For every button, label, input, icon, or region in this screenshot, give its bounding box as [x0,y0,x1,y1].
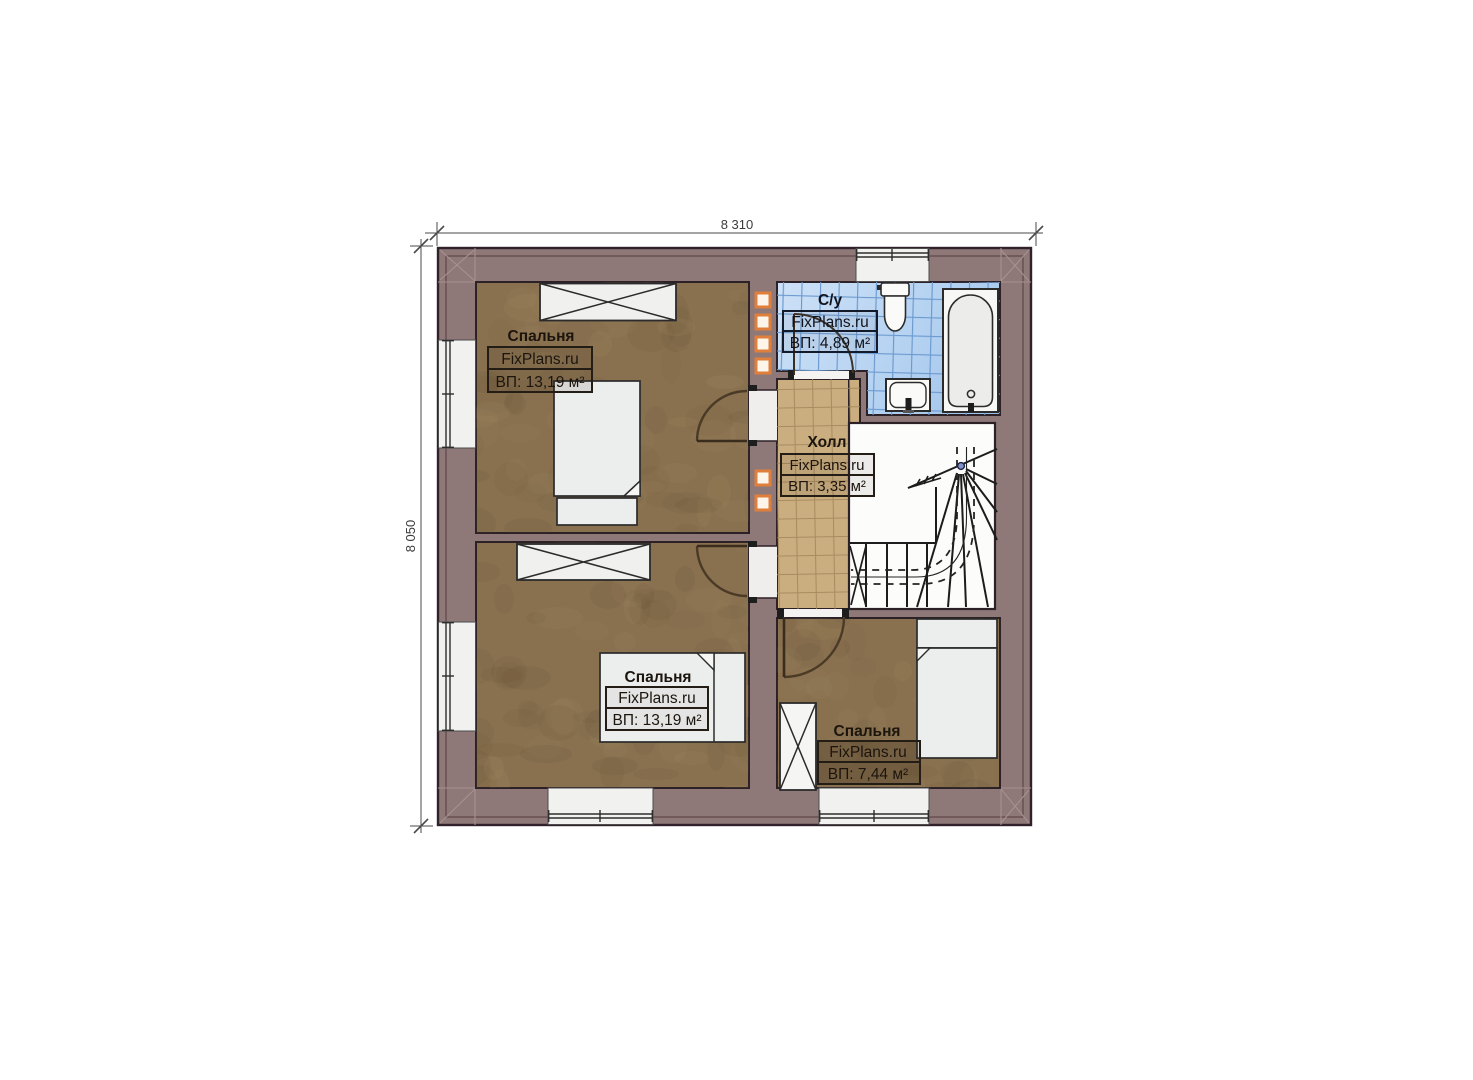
svg-text:Спальня: Спальня [834,723,901,740]
svg-text:FixPlans.ru: FixPlans.ru [829,744,907,761]
svg-text:ВП: 7,44 м²: ВП: 7,44 м² [828,766,908,783]
svg-text:С/у: С/у [818,292,843,309]
svg-text:ВП: 13,19 м²: ВП: 13,19 м² [495,374,584,391]
svg-text:FixPlans.ru: FixPlans.ru [501,351,579,368]
svg-text:FixPlans.ru: FixPlans.ru [791,314,869,331]
svg-text:FixPlans.ru: FixPlans.ru [618,690,696,707]
svg-text:8 310: 8 310 [721,217,754,232]
svg-text:ВП: 13,19 м²: ВП: 13,19 м² [612,712,701,729]
svg-text:FixPlans.ru: FixPlans.ru [789,457,864,474]
svg-text:ВП: 3,35 м²: ВП: 3,35 м² [788,478,866,495]
svg-text:Спальня: Спальня [508,328,575,345]
svg-text:Холл: Холл [808,434,847,451]
svg-text:ВП: 4,89 м²: ВП: 4,89 м² [790,335,870,352]
svg-text:8 050: 8 050 [403,520,418,553]
svg-text:Спальня: Спальня [625,669,692,686]
